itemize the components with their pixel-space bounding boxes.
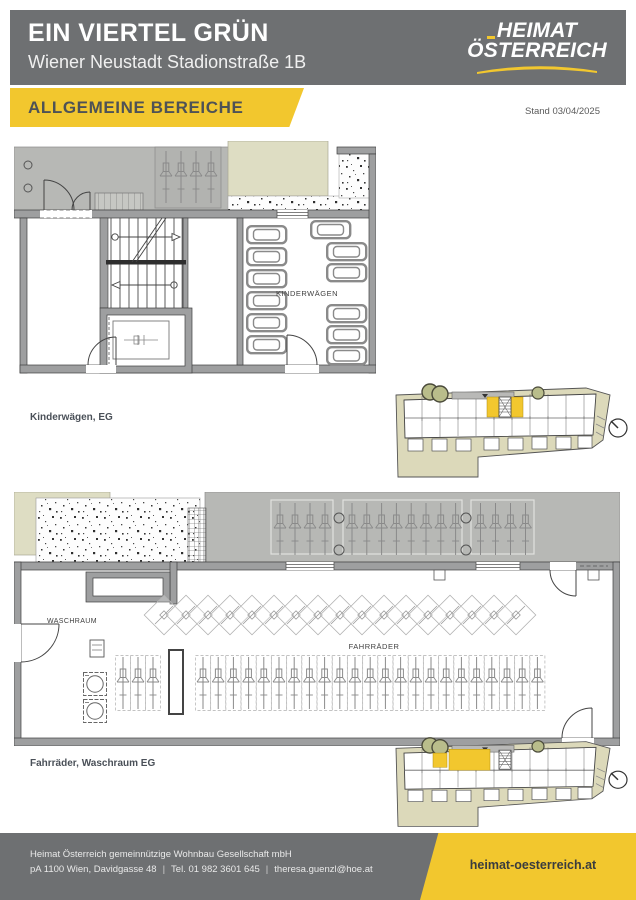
logo-line2: ÖSTERREICH: [467, 39, 607, 62]
planting-area: [228, 141, 328, 196]
wall-window: [277, 210, 308, 218]
washing-machine: [84, 673, 107, 696]
header-band: EIN VIERTEL GRÜN Wiener Neustadt Stadion…: [10, 10, 626, 85]
sink: [90, 640, 104, 657]
caption-plan1: Kinderwägen, EG: [30, 412, 113, 423]
floorplan-kinderwaegen: KINDERWÄGEN: [14, 141, 376, 386]
keyplan-kinderwaegen: [392, 380, 632, 485]
room-label-fahrraeder: FAHRRÄDER: [349, 642, 400, 651]
stand-date: Stand 03/04/2025: [0, 106, 600, 117]
bike-room: FAHRRÄDER: [116, 595, 595, 746]
footer-company: Heimat Österreich gemeinnützige Wohnbau …: [30, 847, 373, 862]
footer-phone: Tel. 01 982 3601 645: [171, 864, 260, 875]
floorplan-fahrraeder: WASCHRAUM FAHRRÄDER: [14, 492, 620, 746]
gravel-area-2: [36, 498, 200, 562]
footer-email: theresa.guenzl@hoe.at: [274, 864, 372, 875]
elevator: [100, 308, 192, 373]
grate-area: [188, 508, 206, 562]
footer-contact: Heimat Österreich gemeinnützige Wohnbau …: [30, 847, 373, 877]
stroller-room: KINDERWÄGEN: [247, 221, 366, 373]
heimat-oesterreich-logo: HEIMAT ÖSTERREICH: [462, 21, 612, 74]
footer-address: pA 1100 Wien, Davidgasse 48: [30, 864, 157, 875]
room-label-kinderwaegen: KINDERWÄGEN: [276, 289, 338, 298]
highlight-kinderwaegen: [487, 397, 523, 417]
door-waschraum: [14, 624, 59, 662]
logo-line1: HEIMAT: [497, 21, 577, 41]
door-frame-pillar: [169, 650, 183, 714]
logo-swoosh-icon: [473, 64, 601, 74]
laundry-room: WASCHRAUM: [14, 572, 170, 723]
project-title: EIN VIERTEL GRÜN: [28, 19, 269, 48]
keyplan-fahrraeder: [392, 734, 632, 834]
caption-plan2: Fahrräder, Waschraum EG: [30, 758, 155, 769]
door-stroller-room: [285, 335, 319, 373]
washing-machine: [84, 700, 107, 723]
exterior-area: [14, 141, 376, 212]
outdoor-bike-racks: [155, 147, 221, 208]
exterior-area-2: [14, 492, 620, 562]
footer-website: heimat-oesterreich.at: [440, 858, 626, 872]
staircase: [100, 218, 188, 308]
project-subtitle: Wiener Neustadt Stadionstraße 1B: [28, 52, 306, 73]
